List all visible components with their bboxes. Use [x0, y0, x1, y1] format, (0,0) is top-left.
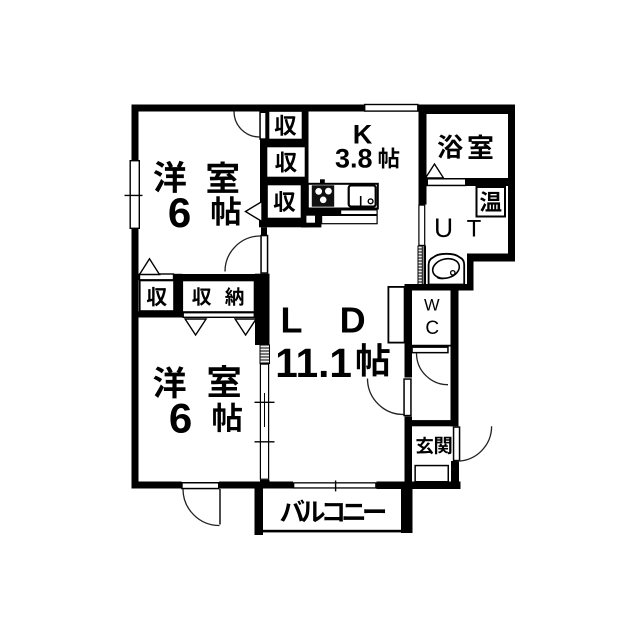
svg-text:D: D: [340, 300, 366, 341]
svg-text:C: C: [425, 318, 439, 339]
svg-text:T: T: [467, 216, 482, 243]
svg-text:U: U: [434, 213, 453, 243]
svg-text:3.8: 3.8: [335, 144, 373, 174]
svg-text:W: W: [424, 297, 440, 315]
svg-text:L: L: [281, 300, 303, 341]
svg-text:11.1: 11.1: [275, 340, 352, 386]
svg-text:6: 6: [168, 189, 191, 236]
svg-text:6: 6: [169, 395, 192, 442]
